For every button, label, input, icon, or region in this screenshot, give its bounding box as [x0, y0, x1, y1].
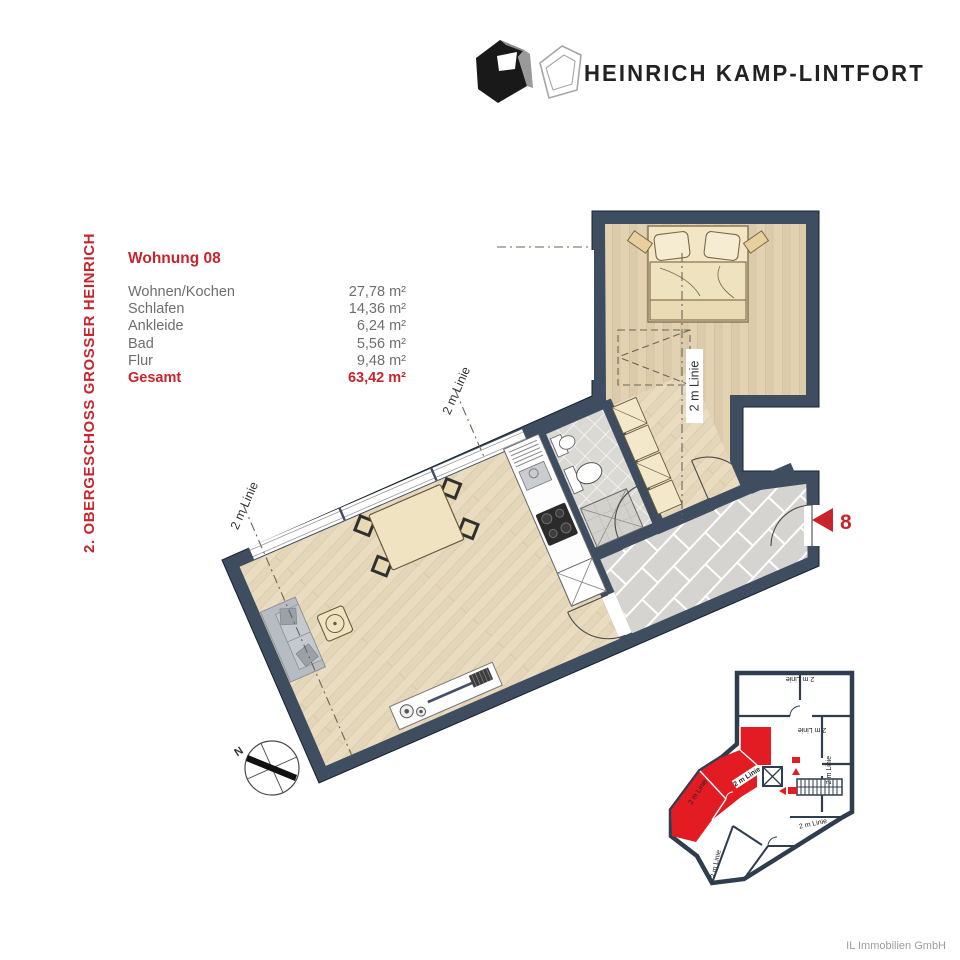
floorplan-sheet: HEINRICH KAMP-LINTFORT 2. OBERGESCHOSS G… [0, 0, 960, 960]
footer-credit: IL Immobilien GmbH [846, 940, 946, 952]
table-row: Ankleide 6,24 m² [128, 318, 406, 335]
table-row: Flur 9,48 m² [128, 353, 406, 370]
compass-icon: N [232, 741, 299, 795]
room-area: 27,78 m² [349, 284, 406, 301]
table-row: Bad 5,56 m² [128, 336, 406, 353]
room-label: Schlafen [128, 301, 184, 318]
table-row-total: Gesamt 63,42 m² [128, 370, 406, 387]
brand-logo-icon [476, 40, 581, 103]
total-area: 63,42 m² [348, 370, 406, 387]
unit-number: 8 [840, 511, 852, 534]
height-line-label: 2 m Linie [228, 480, 261, 532]
room-area: 14,36 m² [349, 301, 406, 318]
height-line-label: 2 m Linie [440, 365, 473, 417]
room-label: Flur [128, 353, 153, 370]
table-row: Schlafen 14,36 m² [128, 301, 406, 318]
bed [628, 226, 769, 322]
bedroom-window [587, 250, 594, 380]
mini-height-label: 2 m Linie [786, 675, 815, 682]
table-row: Wohnen/Kochen 27,78 m² [128, 284, 406, 301]
room-label: Ankleide [128, 318, 184, 335]
mini-height-label: 2 m Linie [798, 726, 827, 733]
room-label: Wohnen/Kochen [128, 284, 235, 301]
room-area: 6,24 m² [357, 318, 406, 335]
mini-map: 2 m Linie 2 m Linie 2 m Linie 2 m Linie … [671, 673, 852, 883]
mini-height-label: 2 m Linie [826, 756, 833, 785]
height-line-label: 2 m Linie [687, 361, 701, 412]
floor-level-label: 2. OBERGESCHOSS GROSSER HEINRICH [81, 213, 102, 553]
room-area: 5,56 m² [357, 336, 406, 353]
unit-title: Wohnung 08 [128, 250, 406, 268]
room-label: Bad [128, 336, 154, 353]
total-label: Gesamt [128, 370, 181, 387]
brand-name: HEINRICH KAMP-LINTFORT [584, 58, 930, 88]
mini-map-stairs [797, 779, 842, 795]
area-table: Wohnung 08 Wohnen/Kochen 27,78 m² Schlaf… [128, 250, 406, 387]
room-area: 9,48 m² [357, 353, 406, 370]
compass-north-label: N [232, 745, 245, 759]
plan-canvas: 8 2 m Linie 2 m Linie 2 m Linie [0, 0, 960, 960]
